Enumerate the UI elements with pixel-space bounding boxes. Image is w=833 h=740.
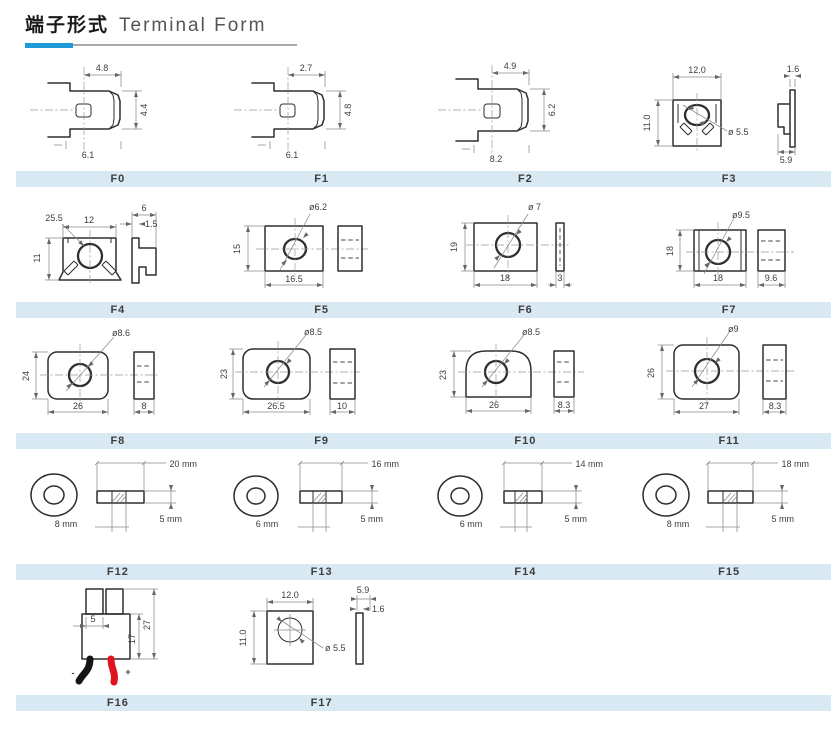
terminal-label-f4: F4 <box>16 304 220 316</box>
f10-bottom-dim: 26 <box>489 400 499 410</box>
f15-dimensions: 8 mm 18 mm 5 mm <box>666 459 808 532</box>
f10-side-view <box>554 351 574 397</box>
terminal-label-f13: F13 <box>220 566 424 578</box>
f2-right-dim: 6.2 <box>547 104 557 117</box>
terminal-label-f5: F5 <box>220 304 424 316</box>
f8-side-dim: 8 <box>142 401 147 411</box>
f12-thickness-dim: 5 mm <box>160 514 183 524</box>
terminal-f15-cell: 8 mm 18 mm 5 mm <box>627 449 831 564</box>
f6-hole-dia: ø 7 <box>528 202 541 212</box>
f0-top-dim: 4.8 <box>96 63 109 73</box>
f17-top-dim: 12.0 <box>281 590 299 600</box>
f13-washer-front <box>234 476 278 516</box>
f9-dimensions: ø8.5 23 26.5 10 <box>220 327 355 415</box>
f4-front-view <box>59 230 121 284</box>
terminal-f13-cell: 6 mm 16 mm 5 mm <box>220 449 424 564</box>
terminal-f8-drawing: ø8.6 24 26 8 <box>16 319 219 432</box>
f14-width-dim: 14 mm <box>575 459 603 469</box>
f13-thickness-dim: 5 mm <box>361 514 384 524</box>
row-5: 5 17 27 - + <box>16 580 831 695</box>
f5-left-dim: 15 <box>232 244 242 254</box>
f11-front-view <box>666 337 794 405</box>
f4-leader-dim: 25.5 <box>46 213 64 223</box>
f7-bottom-dim: 18 <box>713 273 723 283</box>
f16-plus-sign: + <box>126 667 131 677</box>
f9-side-dim: 10 <box>337 401 347 411</box>
terminal-f10-drawing: ø8.5 23 26 8.3 <box>424 319 627 432</box>
terminal-f10-cell: ø8.5 23 26 8.3 <box>424 318 628 433</box>
f2-bottom-dim: 8.2 <box>490 154 503 164</box>
f5-dimensions: ø6.2 15 16.5 <box>232 202 327 288</box>
f6-side-view <box>556 223 564 271</box>
terminal-label-f15: F15 <box>627 566 831 578</box>
page-title-en: Terminal Form <box>119 15 266 36</box>
f14-dimensions: 6 mm 14 mm 5 mm <box>460 459 603 532</box>
f13-dimensions: 6 mm 16 mm 5 mm <box>256 459 399 532</box>
f6-left-dim: 19 <box>449 242 459 252</box>
f13-washer-side <box>300 491 342 503</box>
f1-top-dim: 2.7 <box>300 63 313 73</box>
f4-side-view <box>132 238 156 283</box>
f5-hole-dia: ø6.2 <box>309 202 327 212</box>
f5-bottom-dim: 16.5 <box>285 274 303 284</box>
f16-wires <box>79 659 114 682</box>
terminal-f13-drawing: 6 mm 16 mm 5 mm <box>220 450 423 563</box>
terminal-f11-drawing: ø9 26 27 8.3 <box>628 319 831 432</box>
f12-width-dim: 20 mm <box>170 459 198 469</box>
f15-hole-dim: 8 mm <box>666 519 689 529</box>
terminal-f9-cell: ø8.5 23 26.5 10 <box>220 318 424 433</box>
terminal-f3-drawing: 12.0 11.0 ø 5.5 1.6 5.9 <box>628 57 831 170</box>
f6-front-view <box>466 215 570 279</box>
f15-washer-front <box>643 474 689 516</box>
f6-side-dim: 3 <box>557 273 562 283</box>
terminal-label-f8: F8 <box>16 435 220 447</box>
terminal-label-f14: F14 <box>424 566 628 578</box>
terminal-f2-drawing: 4.9 6.2 8.2 <box>424 57 627 170</box>
f7-left-dim: 18 <box>665 246 675 256</box>
f12-washer-front <box>31 474 77 516</box>
f11-side-dim: 8.3 <box>768 401 781 411</box>
f1-right-dim: 4.8 <box>343 104 353 117</box>
terminal-f14-drawing: 6 mm 14 mm 5 mm <box>424 450 627 563</box>
terminal-f4-drawing: 25.5 12 11 6 1.5 <box>16 188 219 301</box>
f10-hole-dia: ø8.5 <box>522 327 540 337</box>
terminal-f5-drawing: ø6.2 15 16.5 <box>220 188 423 301</box>
f7-side-dim: 9.6 <box>764 273 777 283</box>
f15-thickness-dim: 5 mm <box>771 514 794 524</box>
f10-left-dim: 23 <box>438 370 448 380</box>
f13-width-dim: 16 mm <box>372 459 400 469</box>
terminal-label-f3: F3 <box>627 173 831 185</box>
row-1-label-bar: F0 F1 F2 F3 <box>16 171 831 187</box>
f16-inner-dim: 5 <box>91 614 96 624</box>
f16-minus-sign: - <box>72 668 75 678</box>
f17-side-view <box>356 613 363 664</box>
terminal-label-f7: F7 <box>627 304 831 316</box>
row-4: 8 mm 20 mm 5 mm <box>16 449 831 564</box>
f5-side-view <box>338 226 362 271</box>
f11-side-view <box>763 345 786 399</box>
f0-right-dim: 4.4 <box>139 104 149 117</box>
terminal-f9-drawing: ø8.5 23 26.5 10 <box>220 319 423 432</box>
terminal-f16-drawing: 5 17 27 - + <box>16 581 219 694</box>
f14-thickness-dim: 5 mm <box>564 514 587 524</box>
terminal-f6-drawing: ø 7 19 18 3 <box>424 188 627 301</box>
f6-bottom-dim: 18 <box>500 273 510 283</box>
terminal-label-f2: F2 <box>424 173 628 185</box>
f8-side-view <box>134 352 154 399</box>
f5-front-view <box>256 218 368 279</box>
f17-left-dim: 11.0 <box>238 630 248 647</box>
header-accent-bar <box>25 43 73 48</box>
f11-dimensions: ø9 26 27 8.3 <box>646 324 786 415</box>
terminal-form-page: 端子形式Terminal Form <box>0 0 833 740</box>
f2-dimensions: 4.9 6.2 8.2 <box>462 61 557 164</box>
f17-hole-dia: ø 5.5 <box>325 643 346 653</box>
f17-front-view <box>267 611 313 664</box>
f7-hole-dia: ø9.5 <box>732 210 750 220</box>
f17-side-top-dim: 5.9 <box>357 585 370 595</box>
f1-bottom-dim: 6.1 <box>286 150 299 160</box>
f11-left-dim: 26 <box>646 368 656 378</box>
f1-dimensions: 2.7 4.8 6.1 <box>258 63 353 160</box>
terminal-label-f12: F12 <box>16 566 220 578</box>
terminal-label-f10: F10 <box>424 435 628 447</box>
f15-washer-side <box>708 491 753 503</box>
f0-dimensions: 4.8 4.4 6.1 <box>54 63 149 160</box>
terminal-f11-cell: ø9 26 27 8.3 <box>627 318 831 433</box>
f16-total-dim: 27 <box>142 620 152 630</box>
f4-left-dim: 11 <box>32 253 42 262</box>
header-divider <box>25 44 297 46</box>
terminal-f17-drawing: 12.0 11.0 ø 5.5 5.9 1.6 <box>220 581 423 694</box>
f3-top-dim: 12.0 <box>688 65 706 75</box>
terminal-f1-cell: 2.7 4.8 6.1 <box>220 56 424 171</box>
f3-side-bottom-dim: 5.9 <box>779 155 792 165</box>
row-2-label-bar: F4 F5 F6 F7 <box>16 302 831 318</box>
f4-side-inner-dim: 1.5 <box>145 219 158 229</box>
f10-front-view <box>458 344 584 404</box>
terminal-f17-cell: 12.0 11.0 ø 5.5 5.9 1.6 <box>220 580 424 695</box>
terminal-label-f0: F0 <box>16 173 220 185</box>
f4-top-dim: 12 <box>84 215 94 225</box>
terminal-label-f9: F9 <box>220 435 424 447</box>
terminal-f12-drawing: 8 mm 20 mm 5 mm <box>16 450 219 563</box>
f8-bottom-dim: 26 <box>73 401 83 411</box>
terminal-f0-cell: 4.8 4.4 6.1 <box>16 56 220 171</box>
terminal-f3-cell: 12.0 11.0 ø 5.5 1.6 5.9 <box>627 56 831 171</box>
terminal-f2-cell: 4.9 6.2 8.2 <box>424 56 628 171</box>
f9-side-view <box>330 349 355 399</box>
f17-side-right-dim: 1.6 <box>372 604 385 614</box>
f0-bottom-dim: 6.1 <box>82 150 95 160</box>
f14-washer-side <box>504 491 542 503</box>
f12-hole-dim: 8 mm <box>55 519 78 529</box>
f3-side-top-dim: 1.6 <box>786 64 799 74</box>
empty-cell-2 <box>627 580 831 695</box>
f2-top-dim: 4.9 <box>504 61 517 71</box>
f16-body-dim: 17 <box>127 634 137 644</box>
f7-side-view <box>758 230 785 271</box>
terminal-f0-drawing: 4.8 4.4 6.1 <box>16 57 219 170</box>
f9-front-view <box>235 341 360 405</box>
terminal-f7-cell: ø9.5 18 18 9.6 <box>627 187 831 302</box>
f10-side-dim: 8.3 <box>558 400 571 410</box>
terminal-label-f16: F16 <box>16 697 220 709</box>
f9-left-dim: 23 <box>220 369 229 379</box>
f15-width-dim: 18 mm <box>781 459 809 469</box>
terminal-f14-cell: 6 mm 14 mm 5 mm <box>424 449 628 564</box>
f8-left-dim: 24 <box>21 371 31 381</box>
f11-bottom-dim: 27 <box>699 401 709 411</box>
f11-hole-dia: ø9 <box>728 324 739 334</box>
terminal-label-f6: F6 <box>424 304 628 316</box>
f3-hole-dia: ø 5.5 <box>728 127 749 137</box>
f13-hole-dim: 6 mm <box>256 519 279 529</box>
row-4-label-bar: F12 F13 F14 F15 <box>16 564 831 580</box>
f14-hole-dim: 6 mm <box>460 519 483 529</box>
row-3-label-bar: F8 F9 F10 F11 <box>16 433 831 449</box>
terminal-f15-drawing: 8 mm 18 mm 5 mm <box>628 450 831 563</box>
row-5-label-bar: F16 F17 <box>16 695 831 711</box>
f12-washer-side <box>97 491 144 503</box>
terminal-f12-cell: 8 mm 20 mm 5 mm <box>16 449 220 564</box>
terminal-f16-cell: 5 17 27 - + <box>16 580 220 695</box>
f3-front-view <box>673 93 721 152</box>
terminal-label-f17: F17 <box>220 697 424 709</box>
terminal-f7-drawing: ø9.5 18 18 9.6 <box>628 188 831 301</box>
row-2: 25.5 12 11 6 1.5 <box>16 187 831 302</box>
row-1: 4.8 4.4 6.1 <box>16 56 831 171</box>
terminal-label-f11: F11 <box>627 435 831 447</box>
terminal-f6-cell: ø 7 19 18 3 <box>424 187 628 302</box>
empty-cell-1 <box>424 580 628 695</box>
terminal-f5-cell: ø6.2 15 16.5 <box>220 187 424 302</box>
f3-left-dim: 11.0 <box>642 115 652 132</box>
page-header: 端子形式Terminal Form <box>0 0 833 54</box>
f8-hole-dia: ø8.6 <box>112 328 130 338</box>
f7-dimensions: ø9.5 18 18 9.6 <box>665 210 785 288</box>
terminal-grid: 4.8 4.4 6.1 <box>16 56 831 711</box>
terminal-f8-cell: ø8.6 24 26 8 <box>16 318 220 433</box>
row-3: ø8.6 24 26 8 <box>16 318 831 433</box>
terminal-f1-drawing: 2.7 4.8 6.1 <box>220 57 423 170</box>
page-title-zh: 端子形式 <box>25 15 109 36</box>
f4-side-top-dim: 6 <box>142 203 147 213</box>
f9-hole-dia: ø8.5 <box>304 327 322 337</box>
terminal-label-f1: F1 <box>220 173 424 185</box>
terminal-f4-cell: 25.5 12 11 6 1.5 <box>16 187 220 302</box>
f14-washer-front <box>438 476 482 516</box>
f9-bottom-dim: 26.5 <box>267 401 285 411</box>
f3-side-view <box>778 90 795 147</box>
f16-connector-body <box>82 589 130 659</box>
